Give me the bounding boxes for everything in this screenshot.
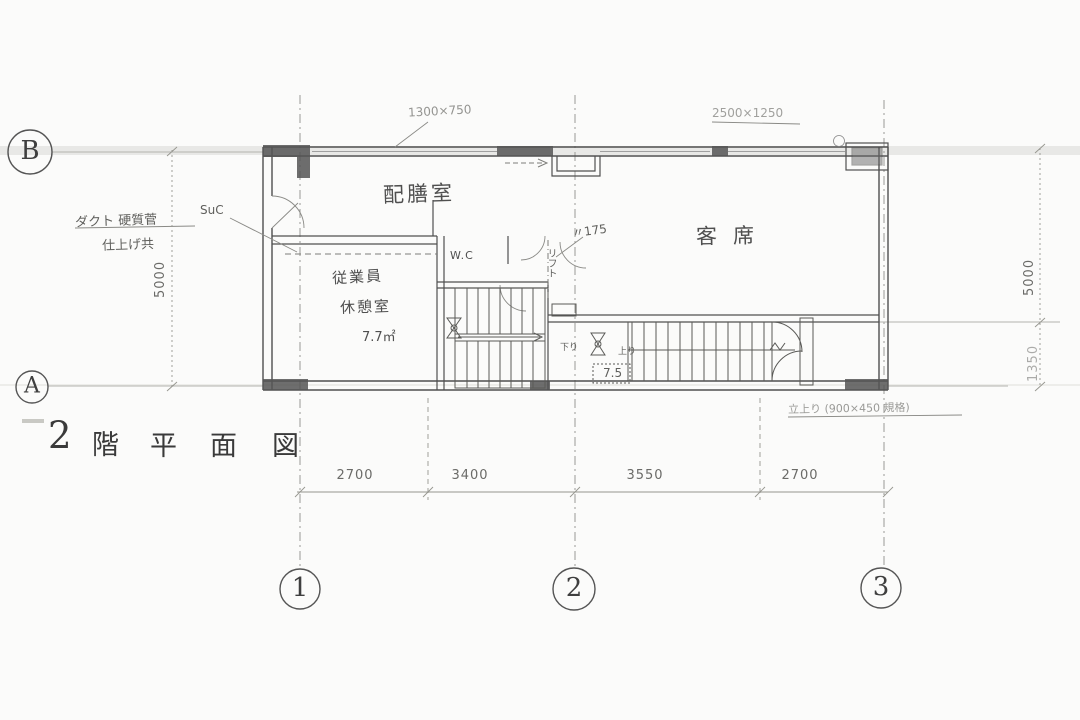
lift-label: リフト <box>543 248 558 278</box>
title-char-zu: 図 <box>272 424 299 463</box>
stair-down-mark: 下り <box>560 340 578 353</box>
room-label-pantry: 配膳室 <box>382 177 455 209</box>
title-char-kai: 階 <box>92 423 119 462</box>
dim-right-5000: 5000 <box>1022 259 1037 296</box>
stair-up-mark: 上り <box>618 344 636 357</box>
title-char-2: 2 <box>48 414 72 457</box>
sill-note: 立上り (900×450 規格) <box>788 399 910 417</box>
room-label-staff-1: 従業員 <box>331 265 383 289</box>
grid-row-b: B <box>20 136 39 166</box>
title-char-hei: 平 <box>150 424 177 463</box>
grid-col-1: 1 <box>292 573 309 603</box>
floor-plan-drawing <box>0 0 1080 720</box>
wall-recess <box>552 156 600 176</box>
dim-3400: 3400 <box>451 468 488 483</box>
duct-note-tag: SuC <box>200 203 224 217</box>
left-stair <box>455 288 576 388</box>
duct-note-line1: ダクト 硬質菅 <box>75 209 158 231</box>
dim-2700-a: 2700 <box>336 468 373 483</box>
dim-2700-b: 2700 <box>781 468 818 483</box>
right-stair <box>628 322 795 381</box>
title-char-men: 面 <box>210 424 237 463</box>
floor-plan-sheet: B A 1 2 3 2 階 平 面 図 2700 3400 3550 2700 … <box>0 0 1080 720</box>
dim-right-1350: 1350 <box>1026 345 1041 382</box>
grid-col-2: 2 <box>566 573 583 603</box>
grid-col-3: 3 <box>873 572 890 602</box>
dim-3550: 3550 <box>626 468 663 483</box>
leader-lines <box>75 122 962 417</box>
duct-note-line2: 仕上げ共 <box>102 233 155 254</box>
room-label-staff-2: 休憩室 <box>340 295 392 318</box>
dim-left-5000: 5000 <box>153 261 168 298</box>
window-size-note-right: 2500×1250 <box>712 106 783 120</box>
grid-row-a: A <box>24 374 40 399</box>
room-label-wc: W.C <box>450 249 474 262</box>
stair-box-value: 7.5 <box>603 366 622 380</box>
room-area-staff: 7.7㎡ <box>362 326 396 345</box>
room-label-guest-seating: 客席 <box>696 219 771 250</box>
title-smudge <box>22 419 44 423</box>
left-door <box>272 196 304 228</box>
double-door <box>772 318 813 385</box>
